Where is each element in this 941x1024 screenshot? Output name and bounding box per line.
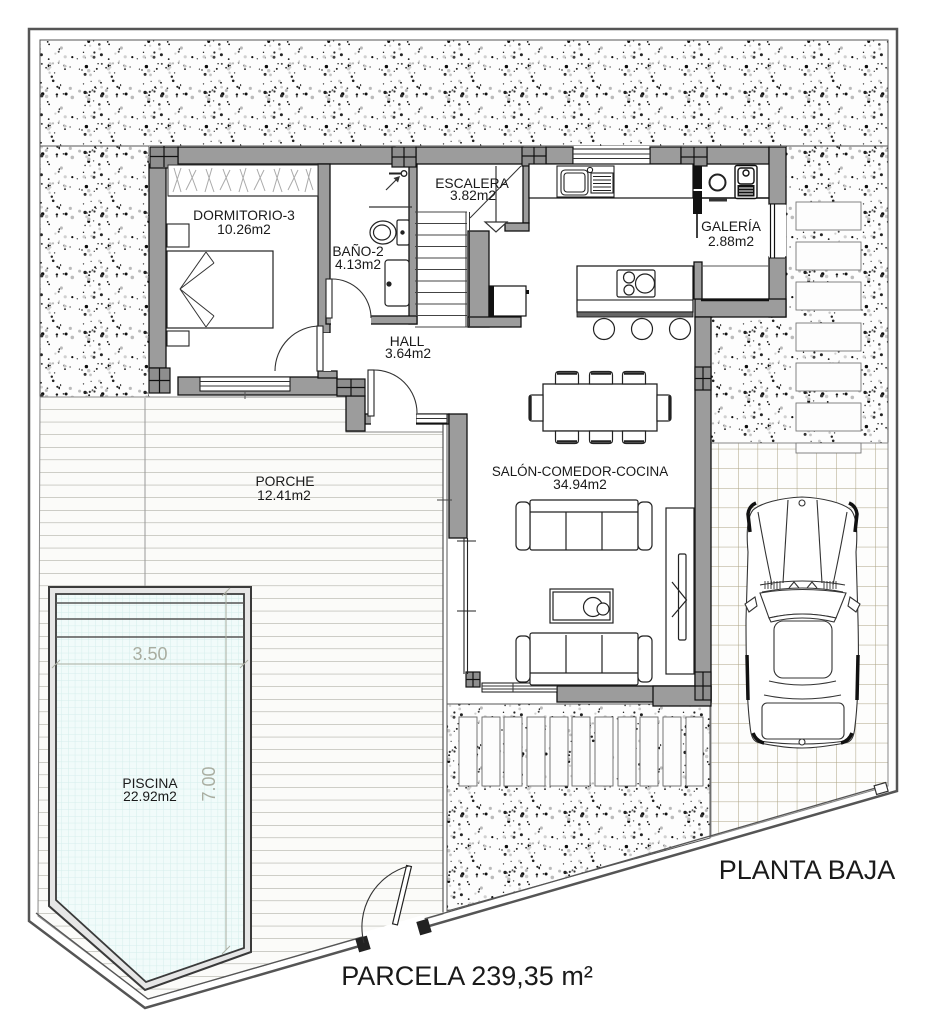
svg-text:GALERÍA: GALERÍA <box>701 218 762 234</box>
svg-text:3.64m2: 3.64m2 <box>385 346 431 361</box>
svg-text:DORMITORIO-3: DORMITORIO-3 <box>193 208 295 223</box>
svg-text:12.41m2: 12.41m2 <box>257 488 311 503</box>
svg-text:7.00: 7.00 <box>199 766 219 801</box>
svg-text:PARCELA 239,35 m²: PARCELA 239,35 m² <box>341 961 593 991</box>
svg-text:PLANTA BAJA: PLANTA BAJA <box>719 855 896 885</box>
svg-text:PORCHE: PORCHE <box>255 474 314 489</box>
svg-text:2.88m2: 2.88m2 <box>708 234 754 249</box>
svg-text:4.13m2: 4.13m2 <box>335 257 381 272</box>
svg-text:3.50: 3.50 <box>132 644 167 664</box>
svg-text:22.92m2: 22.92m2 <box>123 789 177 804</box>
svg-text:10.26m2: 10.26m2 <box>217 222 271 237</box>
svg-text:34.94m2: 34.94m2 <box>553 477 607 492</box>
svg-text:3.82m2: 3.82m2 <box>450 188 496 203</box>
